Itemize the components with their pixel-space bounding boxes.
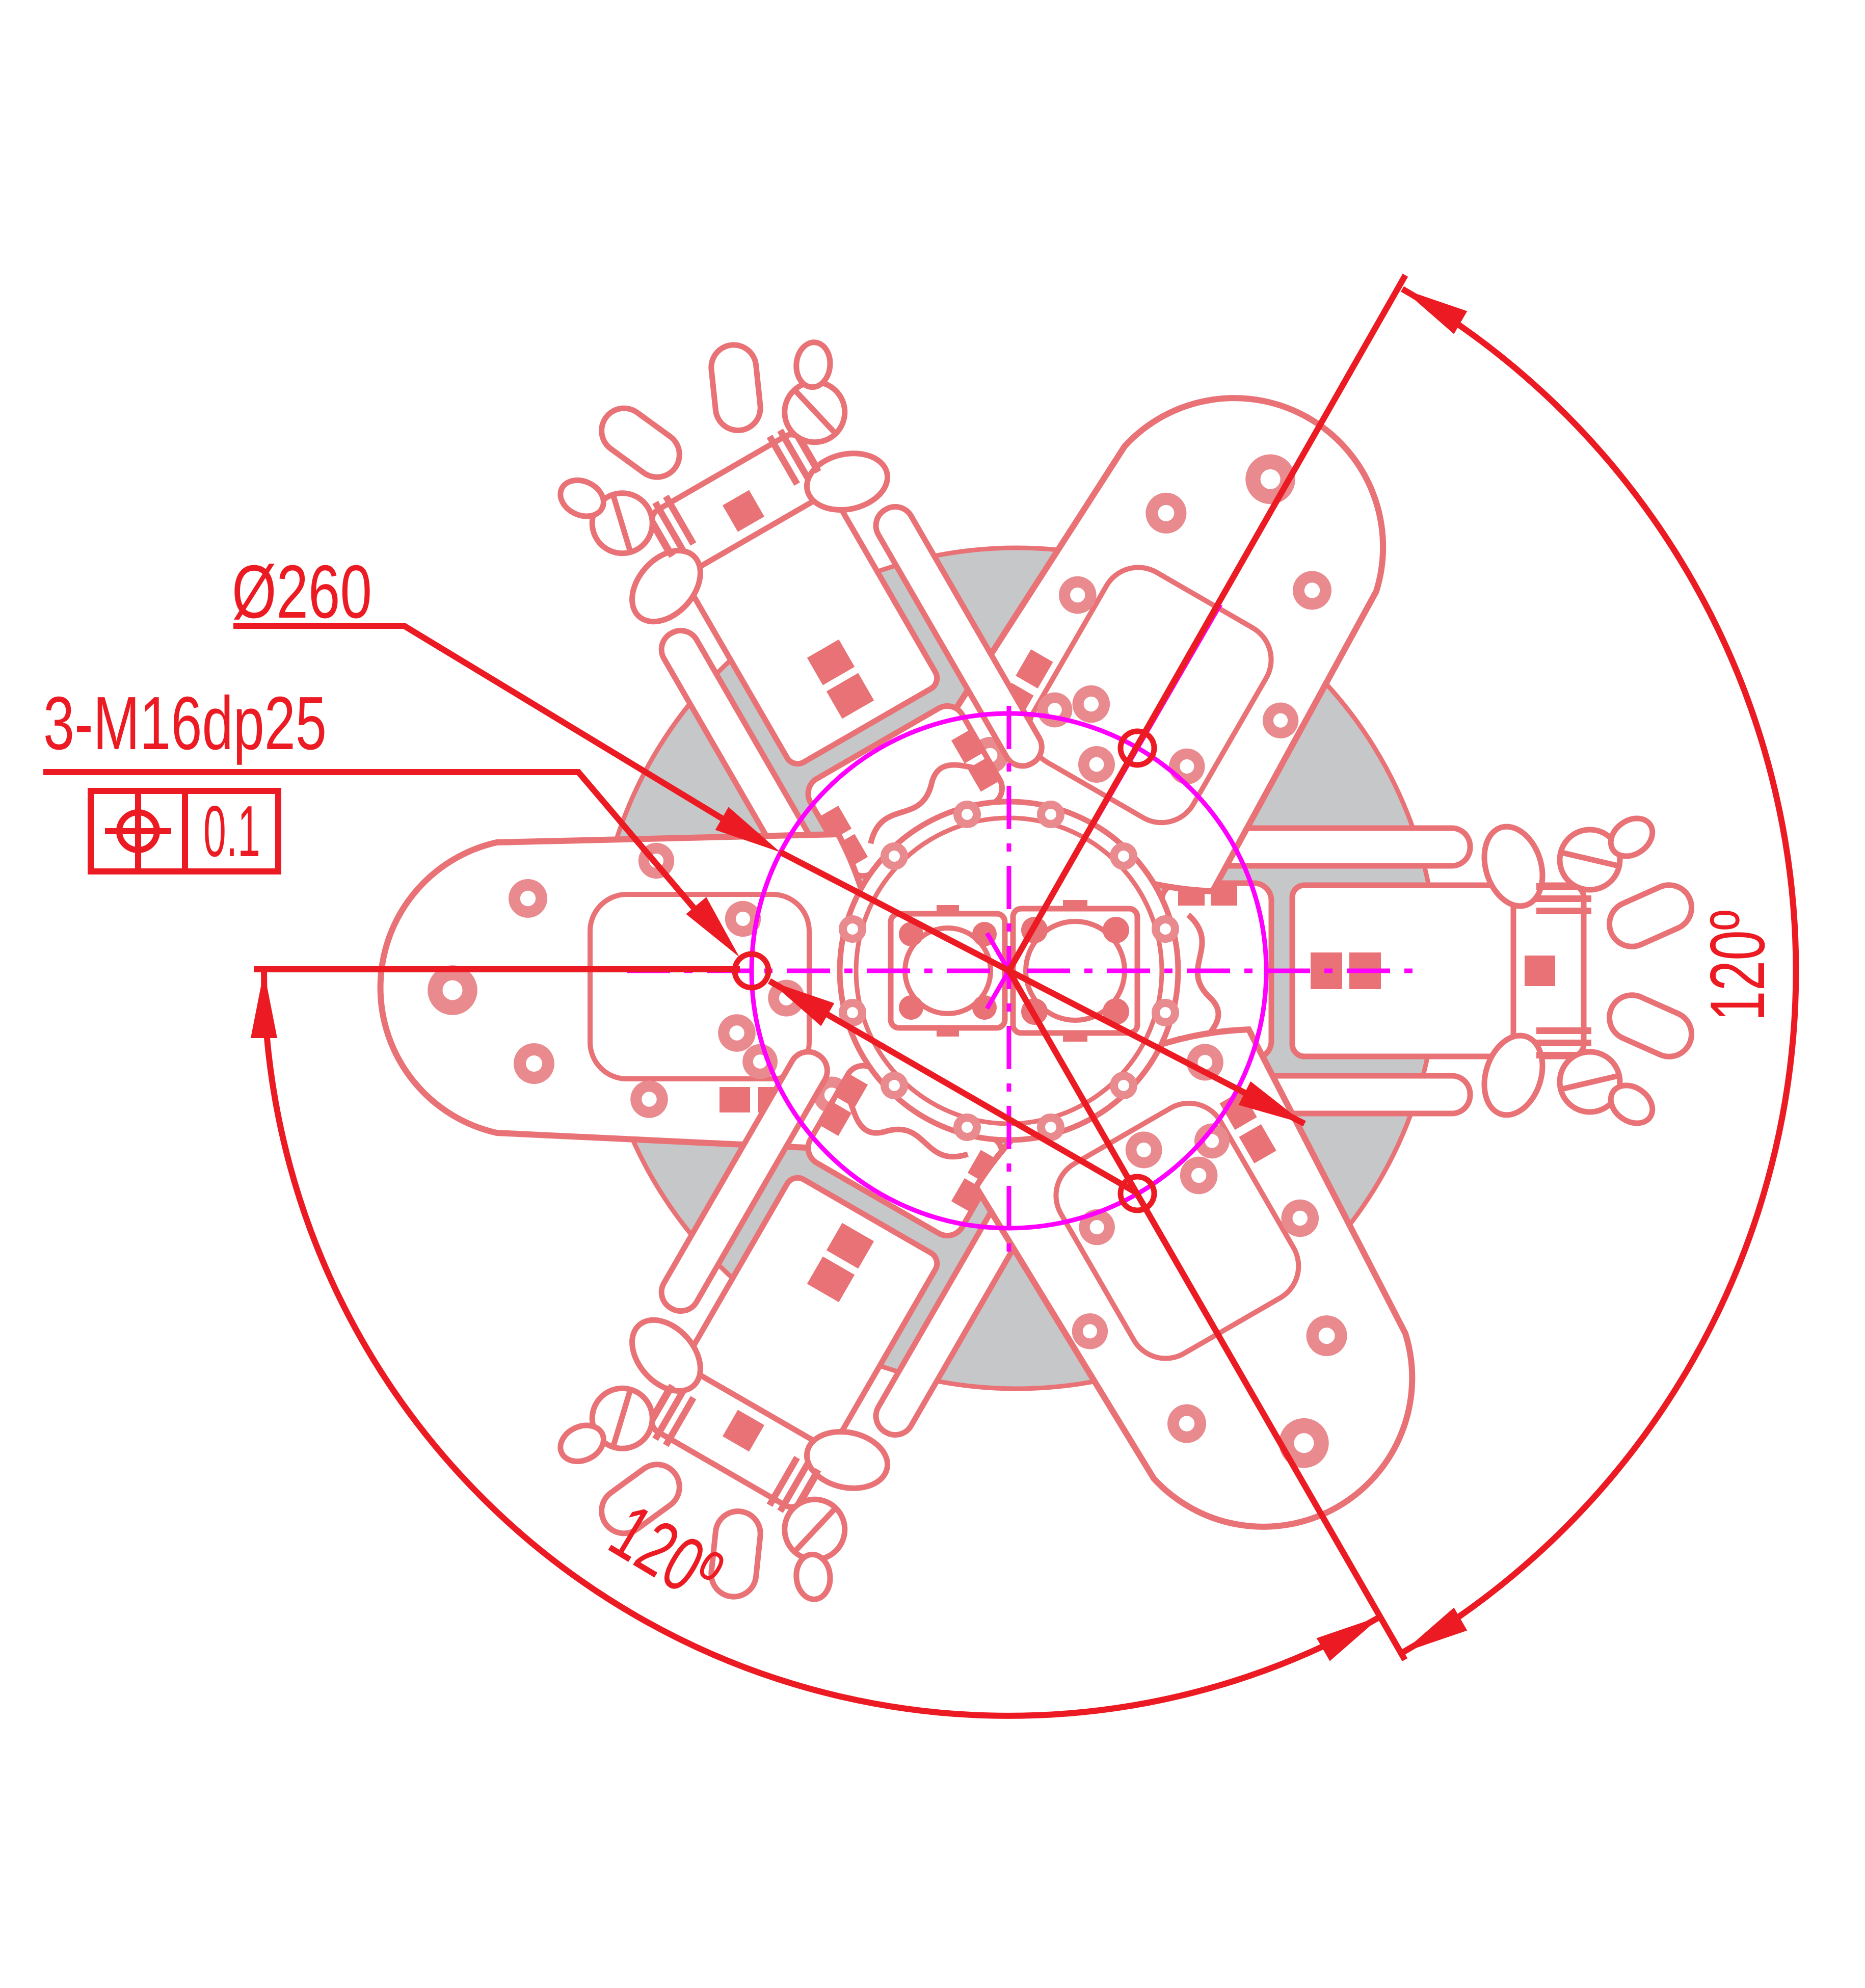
cad-drawing: Ø260 3-M16dp25 120º 120º 0.1 (0, 0, 1865, 1988)
diameter-callout: Ø260 (232, 550, 372, 634)
tolerance-value: 0.1 (203, 791, 260, 872)
drawing-canvas: Ø260 3-M16dp25 120º 120º 0.1 (0, 0, 1865, 1988)
angle-label-right: 120º (1694, 910, 1781, 1021)
thread-callout: 3-M16dp25 (43, 681, 327, 765)
